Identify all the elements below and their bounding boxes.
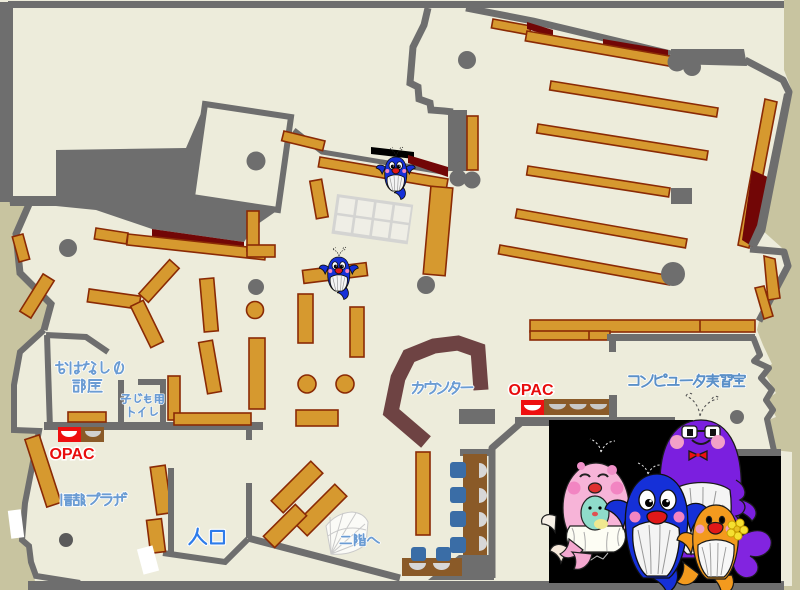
svg-text:OPAC: OPAC bbox=[49, 446, 94, 463]
svg-text:OPAC: OPAC bbox=[508, 382, 553, 399]
